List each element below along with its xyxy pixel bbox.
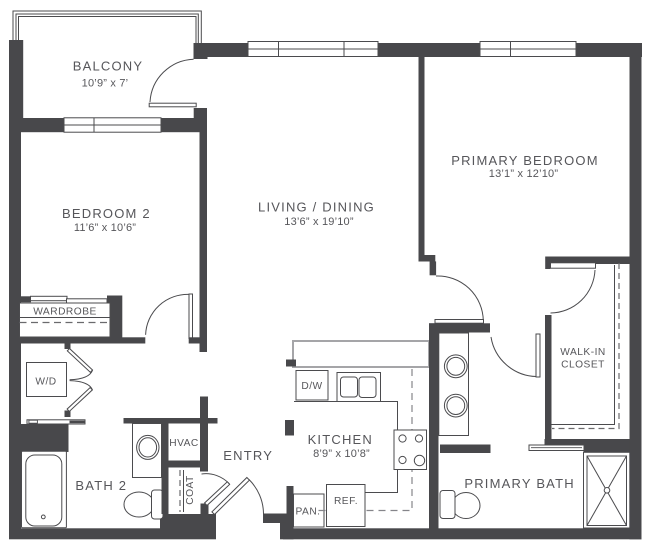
svg-text:CLOSET: CLOSET: [561, 359, 605, 370]
svg-text:PRIMARY BATH: PRIMARY BATH: [464, 476, 574, 491]
svg-text:8’9” x 10’8”: 8’9” x 10’8”: [313, 448, 370, 460]
svg-text:BATH 2: BATH 2: [75, 478, 127, 493]
svg-text:13’1” x 12’10”: 13’1” x 12’10”: [489, 168, 559, 180]
svg-text:HVAC: HVAC: [169, 438, 199, 449]
svg-text:REF.: REF.: [334, 496, 358, 507]
svg-text:WALK-IN: WALK-IN: [560, 347, 606, 358]
svg-text:11’6” x 10’6”: 11’6” x 10’6”: [74, 222, 136, 234]
svg-text:PRIMARY BEDROOM: PRIMARY BEDROOM: [451, 153, 599, 168]
svg-text:10’9” x 7’: 10’9” x 7’: [82, 78, 129, 90]
svg-text:ENTRY: ENTRY: [223, 448, 273, 463]
svg-text:W/D: W/D: [35, 377, 56, 388]
svg-text:D/W: D/W: [301, 381, 322, 392]
svg-text:BEDROOM 2: BEDROOM 2: [62, 206, 151, 221]
svg-text:COAT: COAT: [185, 475, 196, 505]
svg-text:BALCONY: BALCONY: [73, 58, 144, 73]
svg-text:KITCHEN: KITCHEN: [308, 432, 373, 447]
svg-text:13’6” x 19’10”: 13’6” x 19’10”: [284, 216, 354, 228]
svg-text:WARDROBE: WARDROBE: [33, 307, 97, 318]
svg-text:LIVING / DINING: LIVING / DINING: [258, 200, 375, 215]
svg-text:PAN.: PAN.: [295, 507, 320, 518]
